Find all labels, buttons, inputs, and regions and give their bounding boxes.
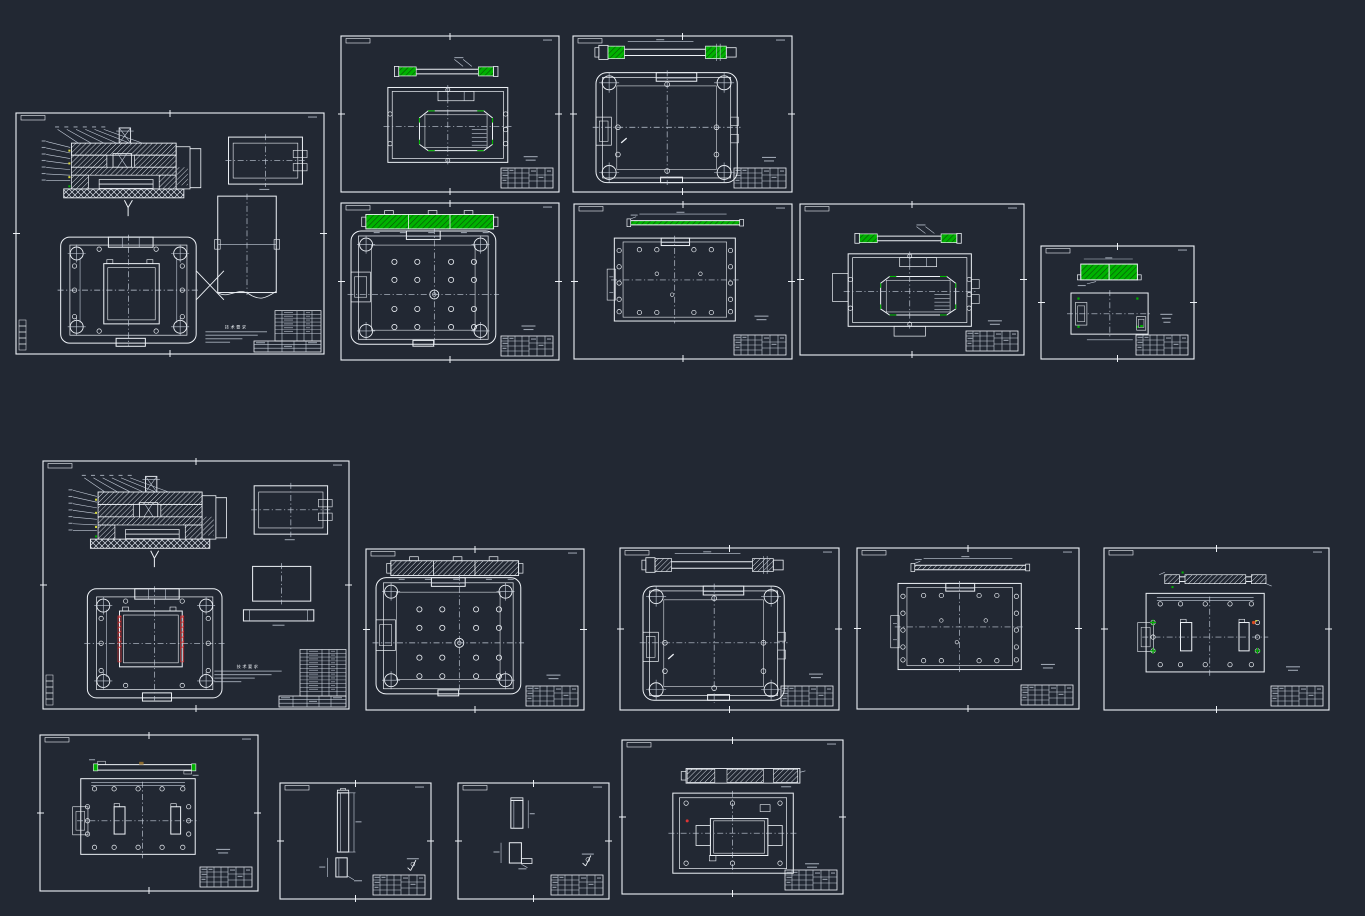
canvas-background [0,0,1365,916]
cad-viewport: 技术要求技术要求 [0,0,1365,916]
tech-notes-heading: 技术要求 [237,663,260,670]
tech-notes-heading: 技术要求 [225,324,248,331]
model-space-canvas[interactable]: 技术要求技术要求 [0,0,1365,916]
